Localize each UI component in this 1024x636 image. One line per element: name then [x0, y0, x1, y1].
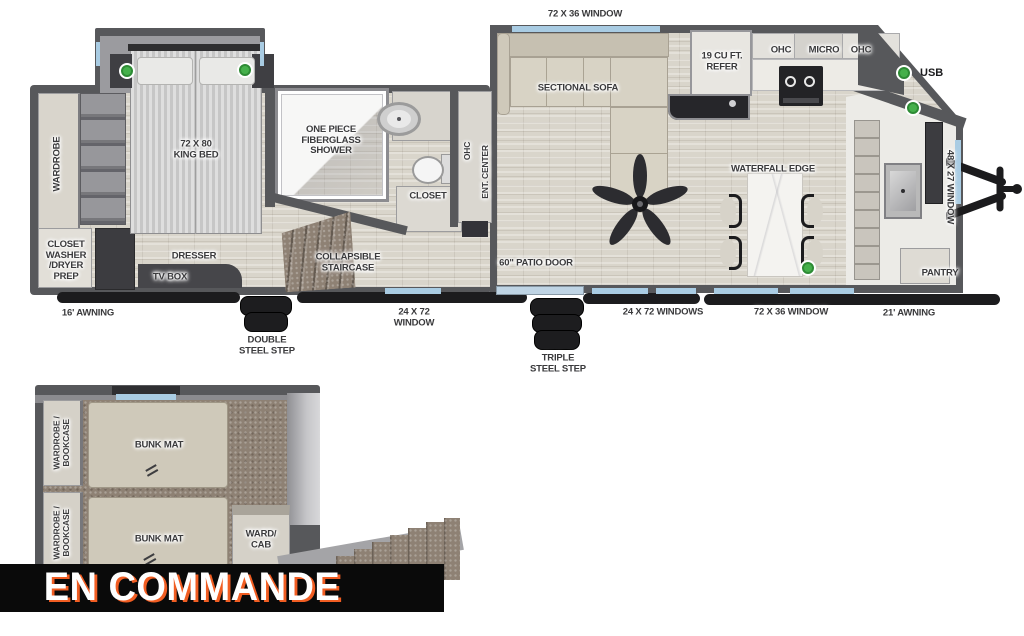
status-banner-text: EN COMMANDE [0, 564, 422, 611]
toilet-bowl [412, 156, 444, 184]
label-window-24x72: 24 X 72 WINDOW [394, 307, 434, 328]
top-window-72x36 [512, 26, 660, 32]
slide-window-right [260, 42, 264, 66]
island-chair-1 [720, 194, 742, 228]
label-ohc-ent: OHC [463, 142, 473, 160]
usb-legend-label: USB [920, 67, 943, 79]
loft-front-slope [287, 393, 320, 525]
dresser-drawers-unit [80, 93, 126, 225]
label-wardrobe: WARDROBE [53, 137, 64, 192]
awning-rail-16ft [57, 292, 240, 303]
usb-indicator-island [802, 262, 814, 274]
chair-back [801, 194, 814, 228]
stove-vent [783, 98, 819, 103]
label-window-72x36: 72 X 36 WINDOW [754, 308, 828, 319]
island-chair-2 [720, 236, 742, 270]
label-ent-center: ENT. CENTER [481, 145, 491, 199]
sofa-corner-seat [610, 57, 668, 107]
slide-window-left [96, 42, 100, 66]
floorplan-canvas: USB 72 X 36 WINDOW SECTIONAL SOFA 19 CU … [0, 0, 1024, 636]
chair-back [729, 194, 742, 228]
label-shower: ONE PIECE FIBERGLASS SHOWER [301, 125, 360, 157]
usb-indicator-bed-right [239, 64, 251, 76]
kitchen-faucet [729, 100, 736, 107]
tv-box-cabinet [95, 228, 135, 290]
double-steel-step-2 [244, 312, 288, 332]
label-bath-closet: CLOSET [409, 192, 446, 203]
label-micro: MICRO [809, 46, 840, 57]
label-top-window: 72 X 36 WINDOW [548, 10, 622, 21]
chair-back [729, 236, 742, 270]
label-loft-wardrobe-1: WARDROBE / BOOKCASE [52, 416, 71, 469]
label-bunk-mat-1: BUNK MAT [135, 441, 183, 452]
wall-tv-panel [925, 122, 943, 204]
right-window-48x27 [955, 140, 961, 204]
triple-steel-step-3 [534, 330, 580, 350]
label-waterfall-edge: WATERFALL EDGE [731, 165, 815, 176]
label-triple-step: TRIPLE STEEL STEP [530, 353, 586, 374]
label-pantry: PANTRY [922, 269, 959, 280]
label-tv-box: TV BOX [153, 273, 187, 284]
label-refer: 19 CU FT. REFER [702, 51, 743, 72]
bottom-window-24x72-b [656, 288, 696, 294]
stove-burner-left [785, 76, 796, 87]
label-window-48x27: 48 X 27 WINDOW [944, 150, 955, 224]
stove-burner-right [804, 76, 815, 87]
label-dresser: DRESSER [172, 252, 217, 263]
label-awning-16: 16' AWNING [62, 309, 114, 320]
bath-ent-divider-wall [450, 87, 458, 227]
ceiling-fan-icon [588, 152, 692, 256]
island-chair-3 [801, 194, 823, 228]
bedroom-bath-divider-wall [265, 85, 275, 207]
bottom-window-24x72-a [592, 288, 648, 294]
patio-door [496, 286, 584, 295]
entertainment-center-base [462, 221, 488, 237]
kitchen-sink-drain [901, 189, 905, 193]
status-banner: EN COMMANDE [0, 564, 444, 612]
label-loft-wardrobe-2: WARDROBE / BOOKCASE [52, 506, 71, 559]
awning-rail-mid2 [583, 293, 700, 304]
usb-indicator-counter [907, 102, 919, 114]
kitchen-island [747, 173, 803, 277]
bath-sink-drain [397, 117, 401, 121]
label-ohc-left: OHC [771, 46, 792, 57]
galley-cabinets [854, 120, 880, 280]
usb-indicator-bed-left [121, 65, 133, 77]
label-patio-door: 60" PATIO DOOR [499, 259, 573, 270]
label-ward-cab: WARD/ CAB [246, 529, 277, 550]
label-collapsible-staircase: COLLAPSIBLE STAIRCASE [316, 252, 381, 273]
label-sectional-sofa: SECTIONAL SOFA [538, 84, 618, 95]
bed-pillow-left [137, 57, 193, 85]
bed-headboard [128, 44, 264, 51]
sofa-arm-left [497, 33, 510, 115]
label-awning-21: 21' AWNING [883, 309, 935, 320]
label-closet-washer: CLOSET WASHER /DRYER PREP [46, 240, 87, 283]
kitchen-dark-counter [668, 94, 750, 120]
bottom-window-24x72 [385, 288, 441, 294]
label-ohc-right: OHC [851, 46, 872, 57]
label-windows-24x72: 24 X 72 WINDOWS [623, 308, 703, 319]
usb-indicator-legend [898, 67, 910, 79]
label-bunk-mat-2: BUNK MAT [135, 535, 183, 546]
label-double-step: DOUBLE STEEL STEP [239, 335, 295, 356]
bottom-window-72x36-a [714, 288, 778, 294]
label-king-bed: 72 X 80 KING BED [174, 139, 219, 160]
awning-rail-21ft [704, 294, 1000, 305]
sofa-back [497, 33, 669, 57]
bottom-window-72x36-b [790, 288, 854, 294]
bunk-mat-bottom [88, 497, 228, 567]
loft-window [116, 394, 176, 400]
